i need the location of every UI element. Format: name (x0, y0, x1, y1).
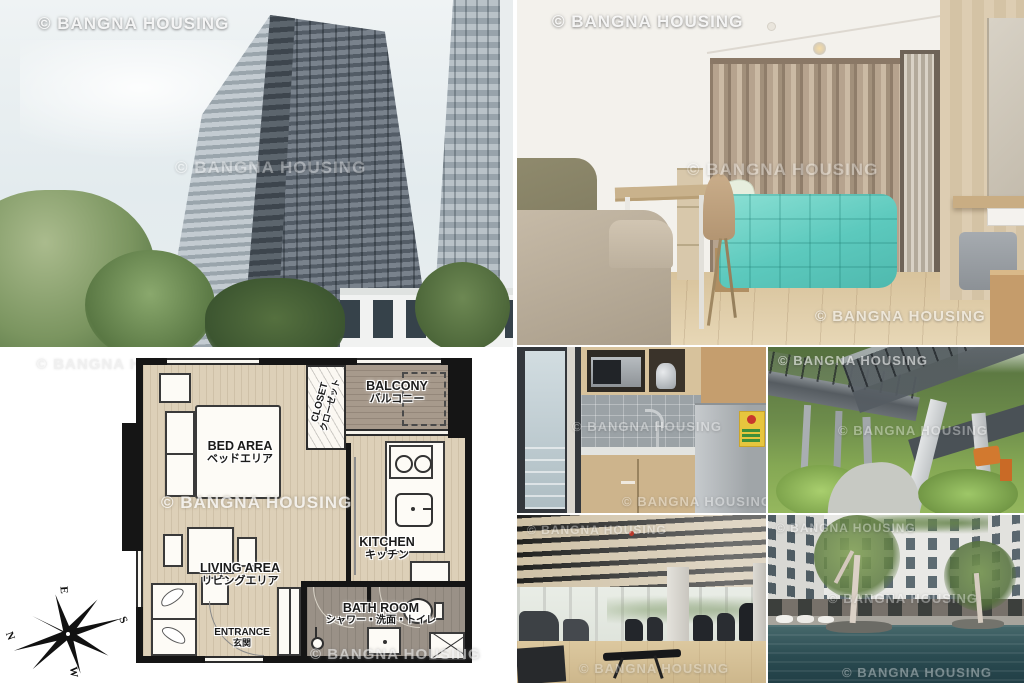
garden-walkway-photo: © BANGNA HOUSING © BANGNA HOUSING (768, 347, 1024, 513)
stove (389, 445, 433, 479)
tall-cabinet (701, 347, 766, 403)
watermark: © BANGNA HOUSING (38, 14, 229, 34)
bathroom-label: BATH ROOM シャワー・洗面・トイレ (301, 601, 461, 626)
floorplan-drawing: CLOSET クローゼット BED AREA ベッドエリア (136, 358, 472, 663)
playground-equipment (973, 445, 1001, 466)
downlight (767, 22, 776, 31)
shoe-cabinet (277, 587, 301, 656)
bed-area-label: BED AREA ベッドエリア (195, 439, 285, 465)
treadmill-row (647, 617, 663, 641)
kitchen-label: KITCHEN キッチン (347, 535, 427, 561)
kitchen-photo: © BANGNA HOUSING © BANGNA HOUSING (517, 347, 766, 513)
treadmill-row (717, 613, 735, 641)
balcony-rail-lines (525, 439, 565, 509)
faucet-tick (423, 508, 433, 510)
drain-dot (383, 640, 387, 644)
treadmill-row (693, 615, 713, 641)
balcony-label: BALCONY バルコニー (351, 379, 443, 405)
energy-label (739, 411, 765, 447)
watermark: © BANGNA HOUSING (161, 493, 352, 513)
downlight (813, 42, 826, 55)
compass-rose: E S W N (10, 588, 130, 680)
burner-icon (395, 455, 413, 473)
entrance-label: ENTRANCE 玄関 (209, 627, 275, 648)
pool-courtyard-photo: © BANGNA HOUSING © BANGNA HOUSING © BANG… (768, 515, 1024, 683)
wall (448, 365, 465, 438)
balcony-rail (346, 429, 448, 436)
divider (289, 589, 291, 654)
chair (163, 534, 183, 567)
bed-comforter (719, 194, 897, 288)
divider (167, 453, 193, 455)
kitchen-wall (346, 443, 351, 585)
window (357, 358, 441, 365)
drain-dot (411, 507, 415, 511)
floating-desk (953, 196, 1024, 208)
entry-door-gap (205, 656, 263, 663)
watermark: © BANGNA HOUSING (838, 423, 988, 438)
rubber-mat (517, 645, 566, 683)
label-green-stripes (742, 428, 760, 442)
burner-icon (414, 455, 432, 473)
living-area-label: LIVING AREA リビングエリア (185, 561, 295, 587)
blind-slats (904, 54, 934, 288)
sofa-armrest (609, 220, 673, 268)
watermark: © BANGNA HOUSING (778, 353, 928, 368)
bedroom-interior-photo: © BANGNA HOUSING © BANGNA HOUSING © BANG… (517, 0, 1024, 345)
leaf-cushion-icon (160, 623, 189, 646)
compass-e: E (57, 586, 70, 594)
watermark: © BANGNA HOUSING (687, 160, 878, 180)
desk-drawer (987, 208, 1024, 226)
cabinet-handle (621, 481, 635, 484)
property-photo-collage: © BANGNA HOUSING © BANGNA HOUSING (0, 0, 1024, 683)
divider (153, 618, 195, 620)
watermark: © BANGNA HOUSING (310, 646, 481, 663)
watermark: © BANGNA HOUSING (552, 12, 743, 32)
watermark: © BANGNA HOUSING (776, 521, 916, 535)
nightstand (159, 373, 191, 403)
watermark: © BANGNA HOUSING (815, 308, 986, 325)
watermark: © BANGNA HOUSING (842, 665, 992, 680)
window-blind (900, 50, 940, 292)
leaf-cushion-icon (158, 585, 186, 610)
compass-w: W (67, 666, 80, 678)
treadmill-row (625, 619, 643, 641)
wall-fin (122, 423, 136, 551)
planter-island (826, 621, 892, 633)
sink (395, 493, 433, 527)
watermark: © BANGNA HOUSING (527, 523, 667, 537)
dark-bush (205, 278, 345, 347)
bed-pillow-column (165, 411, 195, 497)
playground-equipment (1000, 459, 1012, 481)
window (136, 551, 143, 607)
watermark: © BANGNA HOUSING (579, 661, 729, 676)
window (167, 358, 259, 365)
building-exterior-photo: © BANGNA HOUSING © BANGNA HOUSING (0, 0, 513, 347)
microwave (591, 357, 641, 387)
watermark: © BANGNA HOUSING (828, 591, 978, 606)
watermark: © BANGNA HOUSING (622, 494, 766, 509)
floorplan-image: © BANGNA HOUSING CLOSET クローゼット (0, 350, 513, 683)
tv-cabinet (990, 270, 1024, 345)
lounger (797, 615, 814, 623)
fitness-gym-photo: © BANGNA HOUSING © BANGNA HOUSING (517, 515, 766, 683)
lounger (776, 615, 793, 623)
microwave-door (593, 360, 621, 384)
label-red-dot (747, 415, 756, 424)
small-tree (415, 262, 510, 347)
dining-chair (703, 174, 735, 240)
watermark: © BANGNA HOUSING (175, 158, 366, 178)
mirror-panel (987, 18, 1024, 206)
sofa (151, 583, 197, 656)
shower-hose-icon (315, 627, 317, 639)
kettle (656, 363, 676, 389)
watermark: © BANGNA HOUSING (572, 419, 722, 434)
